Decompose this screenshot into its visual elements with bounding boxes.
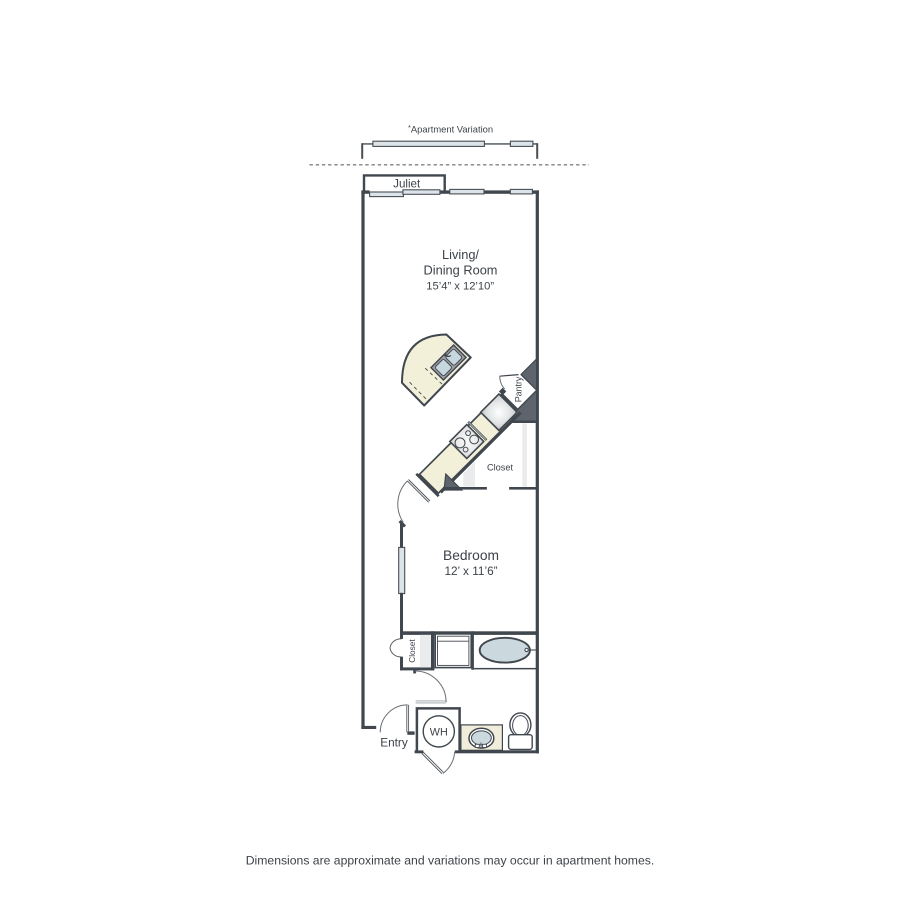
svg-text:Dimensions are approximate and: Dimensions are approximate and variation… [246,854,654,868]
svg-text:WH: WH [430,726,448,738]
svg-text:Juliet: Juliet [393,177,421,190]
svg-text:*Apartment Variation: *Apartment Variation [408,123,493,135]
svg-text:15’4” x 12’10”: 15’4” x 12’10” [426,280,494,292]
svg-text:Entry: Entry [380,736,408,750]
svg-text:Closet: Closet [487,462,513,472]
svg-text:Pantry: Pantry [513,376,523,402]
svg-text:12’ x 11’6”: 12’ x 11’6” [444,564,497,578]
svg-text:Closet: Closet [407,639,417,663]
svg-text:Dining Room: Dining Room [424,263,498,278]
svg-text:Living/: Living/ [442,247,479,262]
svg-text:Bedroom: Bedroom [443,548,499,563]
